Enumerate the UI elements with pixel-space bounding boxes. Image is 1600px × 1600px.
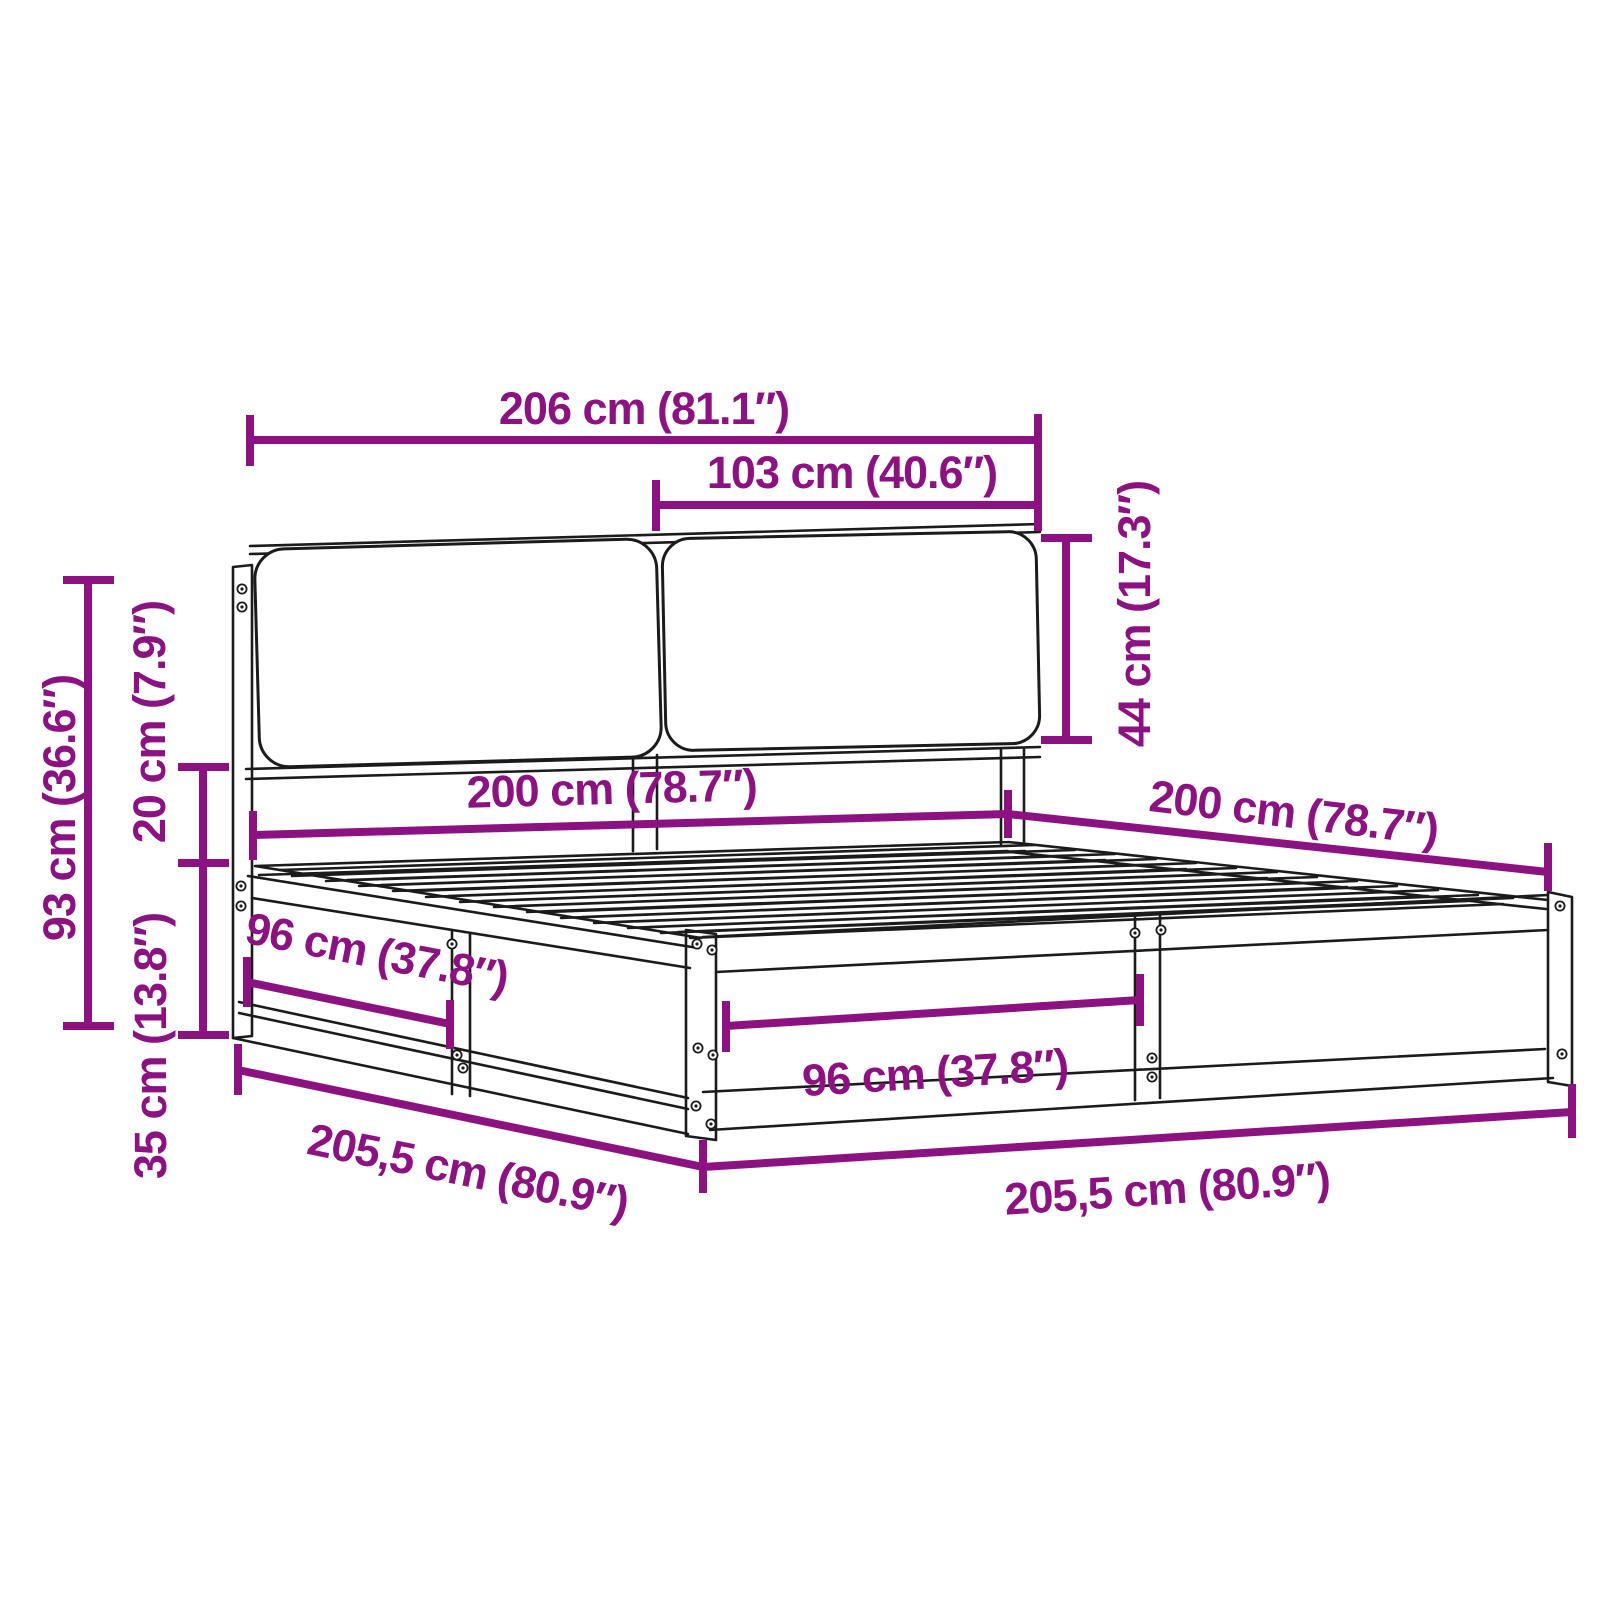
dim-headboard-gap-height-label: 20 cm (7.9″) bbox=[124, 601, 175, 843]
dim-front-length-label: 205,5 cm (80.9″) bbox=[1003, 1152, 1331, 1224]
dim-side-length-label: 205,5 cm (80.9″) bbox=[303, 1113, 632, 1228]
front-left-corner-post bbox=[686, 930, 716, 1140]
dim-cushion-height: 44 cm (17.3″) bbox=[1041, 481, 1160, 747]
dim-base-height: 35 cm (13.8″) bbox=[125, 863, 229, 1179]
dim-front-panel-half: 96 cm (37.8″) bbox=[726, 974, 1140, 1106]
dim-front-panel-half-label: 96 cm (37.8″) bbox=[801, 1039, 1070, 1106]
dim-headboard-cushion-width-label: 103 cm (40.6″) bbox=[707, 447, 997, 498]
dimension-diagram-page: 206 cm (81.1″) 103 cm (40.6″) 44 cm (17.… bbox=[0, 0, 1600, 1600]
dim-cushion-height-label: 44 cm (17.3″) bbox=[1109, 481, 1160, 747]
dim-bed-width-label: 200 cm (78.7″) bbox=[466, 759, 757, 818]
headboard-cushion-right bbox=[662, 531, 1040, 751]
dim-headboard-gap-height: 20 cm (7.9″) bbox=[124, 601, 229, 863]
platform-edges bbox=[248, 842, 1548, 948]
headboard-cushion-left bbox=[254, 538, 662, 767]
dim-total-height: 93 cm (36.6″) bbox=[34, 580, 114, 1026]
dim-headboard-cushion-width: 103 cm (40.6″) bbox=[656, 447, 1038, 531]
dim-total-height-label: 93 cm (36.6″) bbox=[34, 675, 85, 941]
dim-side-panel-half: 96 cm (37.8″) bbox=[241, 902, 512, 1049]
dim-overall-width-label: 206 cm (81.1″) bbox=[499, 383, 789, 434]
dim-base-height-label: 35 cm (13.8″) bbox=[125, 913, 176, 1179]
dim-front-length: 205,5 cm (80.9″) bbox=[703, 1084, 1572, 1225]
bed-dimension-diagram: 206 cm (81.1″) 103 cm (40.6″) 44 cm (17.… bbox=[0, 0, 1600, 1600]
